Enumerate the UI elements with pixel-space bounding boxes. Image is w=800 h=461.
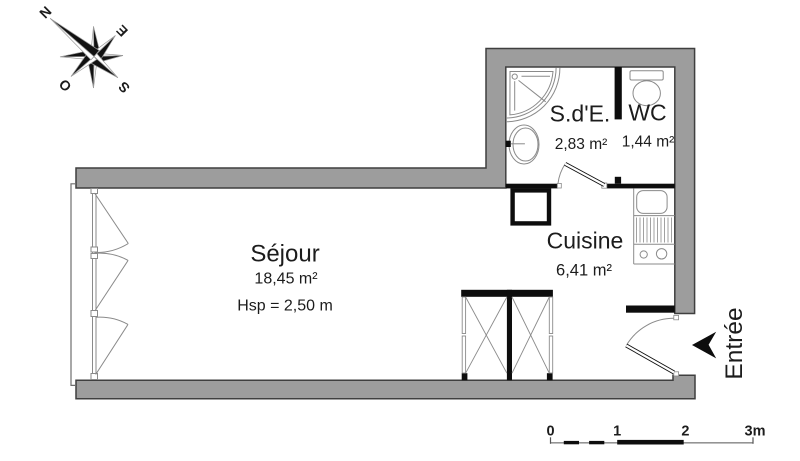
svg-text:1: 1 [613, 424, 621, 440]
svg-text:2: 2 [681, 424, 689, 440]
svg-text:18,45 m²: 18,45 m² [254, 271, 318, 288]
svg-text:S.d'E.: S.d'E. [550, 101, 611, 127]
svg-text:Cuisine: Cuisine [547, 228, 624, 254]
svg-text:Entrée: Entrée [721, 307, 748, 379]
svg-text:0: 0 [546, 424, 554, 440]
svg-text:Hsp = 2,50 m: Hsp = 2,50 m [237, 298, 333, 315]
svg-text:3m: 3m [745, 424, 766, 440]
svg-text:6,41 m²: 6,41 m² [556, 262, 612, 280]
svg-text:WC: WC [628, 100, 666, 126]
svg-text:Séjour: Séjour [250, 241, 319, 268]
svg-text:2,83 m²: 2,83 m² [555, 136, 608, 153]
svg-text:1,44 m²: 1,44 m² [622, 134, 675, 151]
